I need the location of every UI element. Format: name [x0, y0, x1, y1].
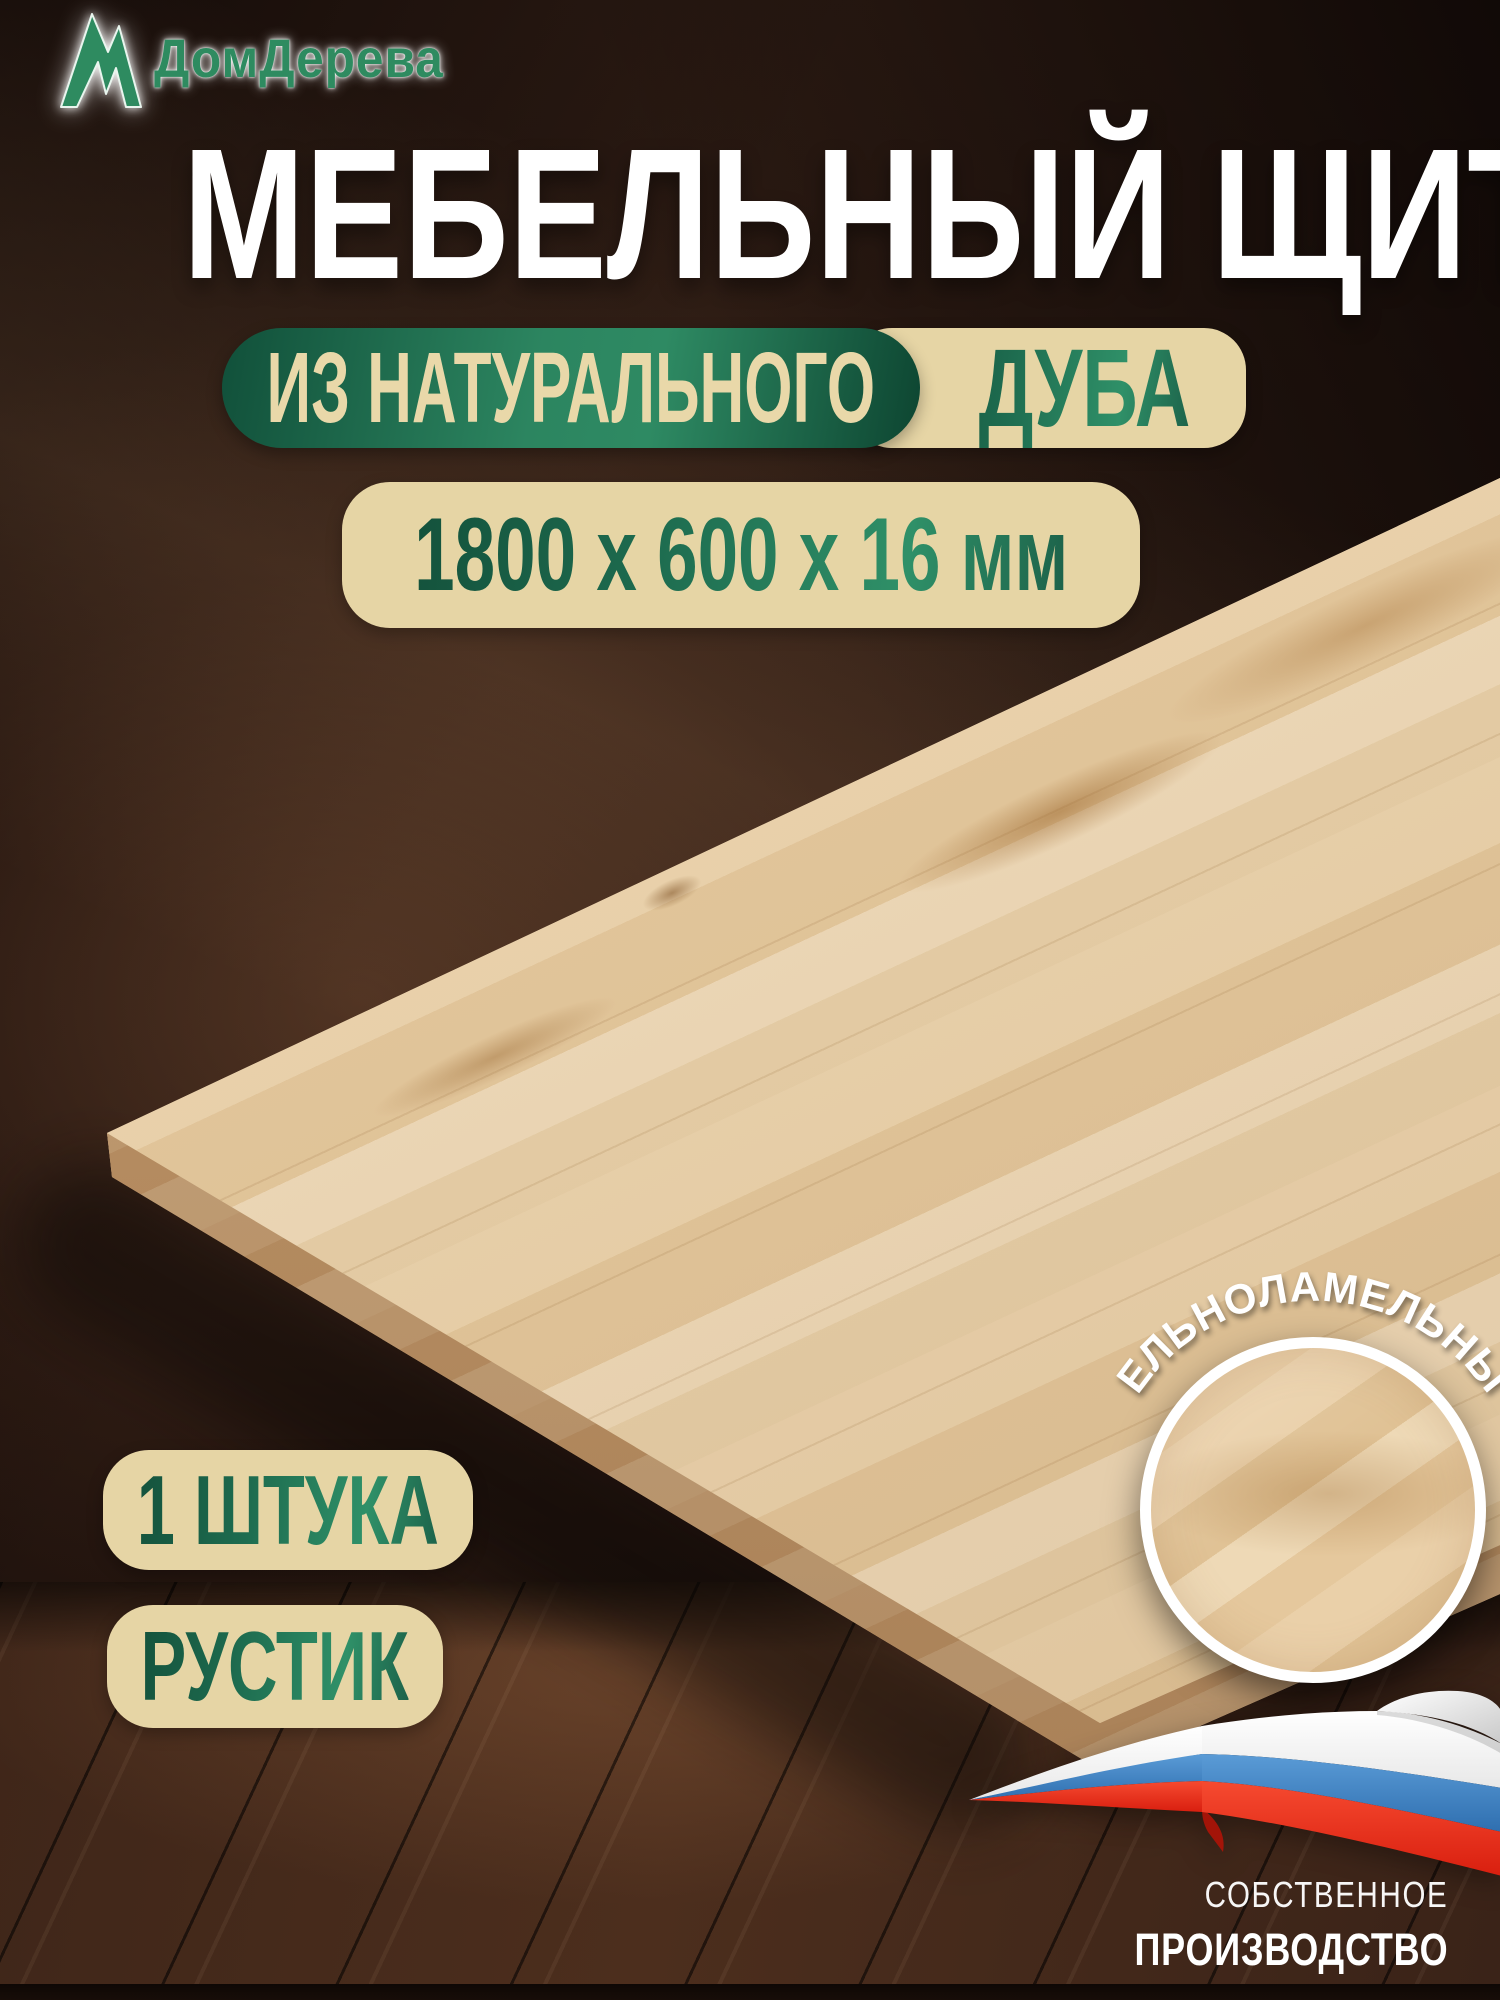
material-badge-natural: ИЗ НАТУРАЛЬНОГО [222, 328, 920, 448]
floor-bottom-strip [0, 1984, 1500, 2000]
dimensions-badge: 1800 х 600 х 16 мм [342, 482, 1140, 628]
russian-flag-ribbon [872, 1686, 1500, 1896]
footer: СОБСТВЕННОЕ ПРОИЗВОДСТВО [1056, 1874, 1448, 1976]
mountain-monogram-icon [58, 8, 144, 110]
product-card: ДомДерева МЕБЕЛЬНЫЙ ЩИТ ДУБА ИЗ НАТУРАЛЬ… [0, 0, 1500, 2000]
brand-name: ДомДерева [154, 28, 444, 90]
brand-logo: ДомДерева [58, 8, 469, 110]
grade-badge: РУСТИК [107, 1605, 443, 1728]
page-title: МЕБЕЛЬНЫЙ ЩИТ [0, 122, 1500, 308]
footer-line-production: ПРОИЗВОДСТВО [1134, 1924, 1448, 1976]
wood-grain-streak [363, 980, 626, 1134]
footer-line-own: СОБСТВЕННОЕ [1126, 1874, 1448, 1916]
quantity-badge: 1 ШТУКА [103, 1450, 473, 1570]
